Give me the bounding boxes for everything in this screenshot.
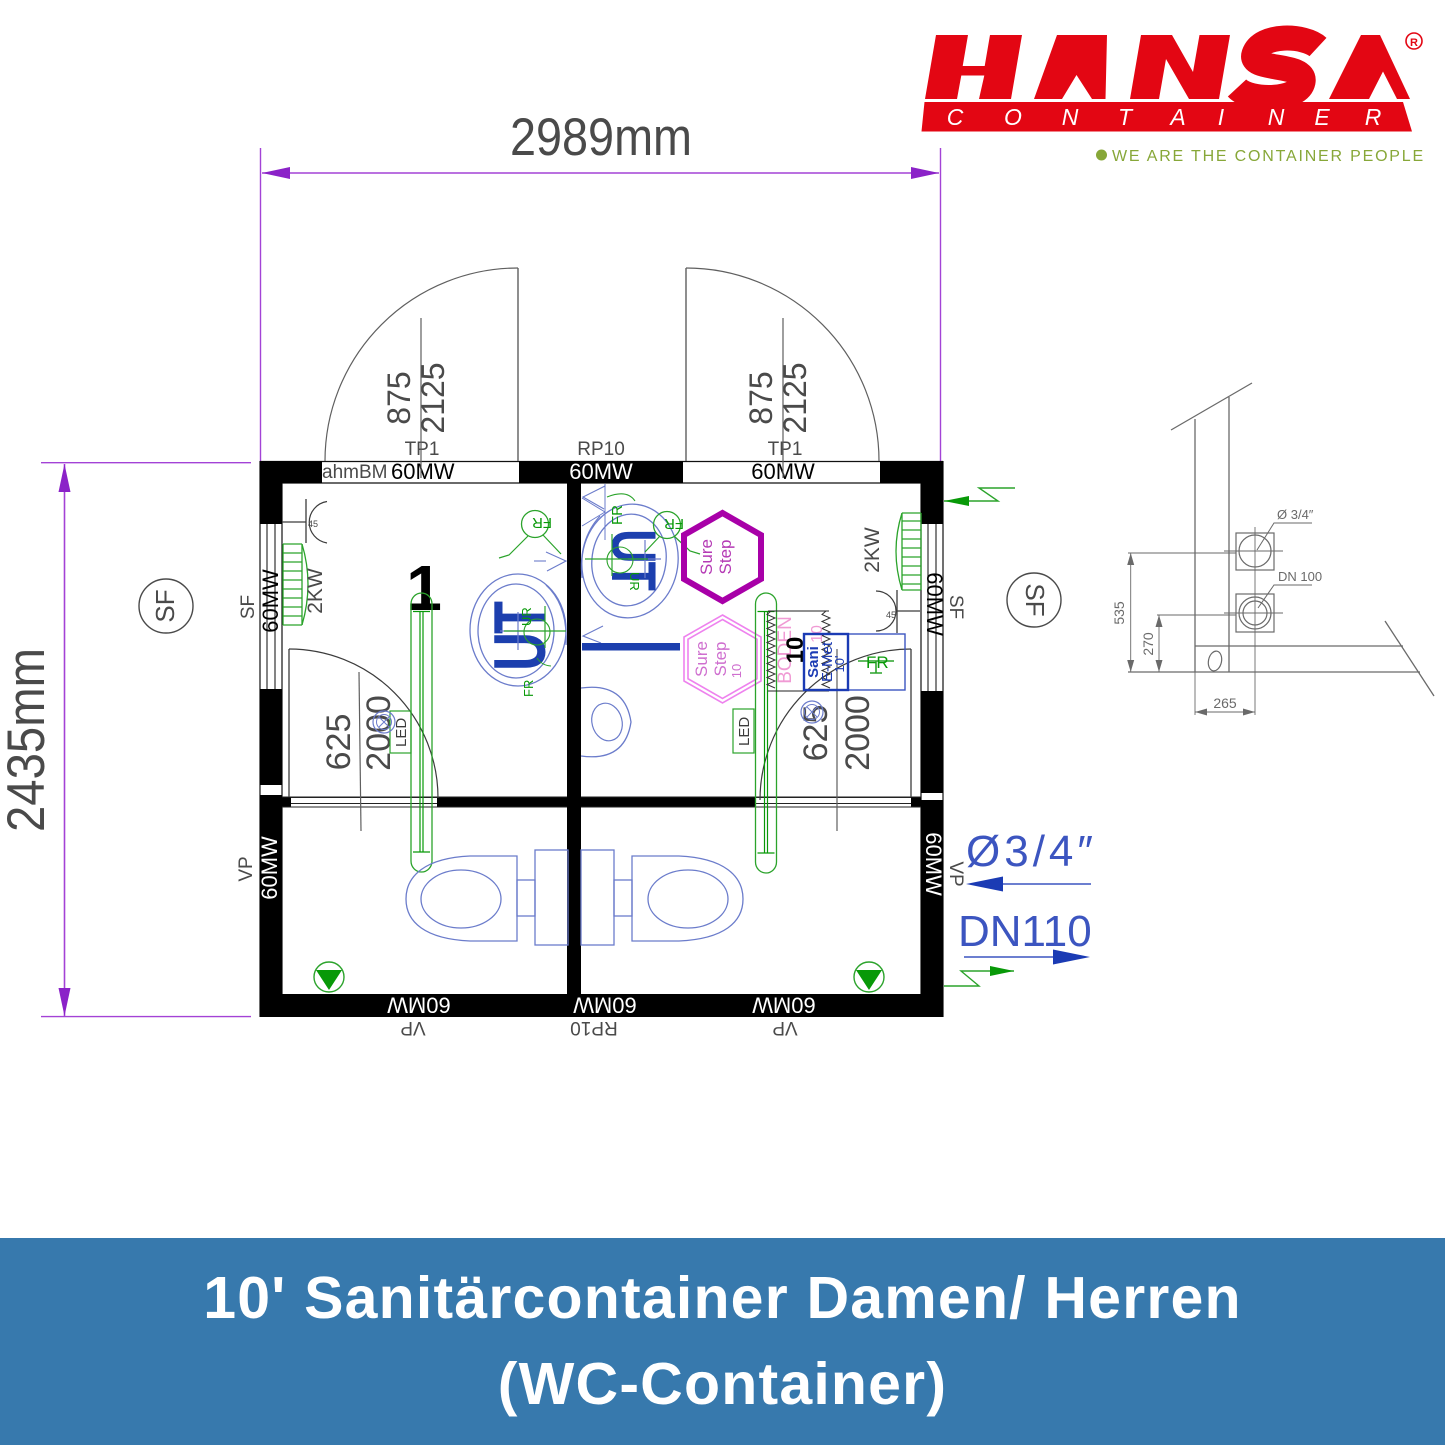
svg-text:875: 875 [743, 371, 779, 424]
svg-text:LED: LED [736, 717, 753, 746]
svg-text:O: O [1004, 104, 1022, 130]
svg-text:10': 10' [832, 656, 847, 673]
svg-text:C: C [947, 104, 964, 130]
svg-text:60MW: 60MW [387, 993, 451, 1018]
svg-text:TP1: TP1 [768, 439, 803, 460]
svg-text:A: A [1168, 104, 1185, 130]
svg-text:SF: SF [945, 595, 966, 619]
svg-text:FR: FR [664, 515, 684, 532]
svg-text:875: 875 [381, 371, 417, 424]
svg-text:265: 265 [1213, 695, 1237, 711]
svg-text:SF: SF [238, 595, 259, 619]
svg-text:60MW: 60MW [258, 569, 283, 633]
svg-text:FR: FR [609, 505, 626, 525]
svg-text:FR: FR [521, 680, 536, 697]
svg-text:RP10: RP10 [570, 1017, 618, 1038]
svg-text:RP10: RP10 [577, 439, 625, 460]
svg-text:DN 100: DN 100 [1278, 569, 1322, 584]
svg-text:Ø 3/4″: Ø 3/4″ [1277, 507, 1314, 522]
svg-text:N: N [1062, 104, 1079, 130]
svg-text:270: 270 [1140, 632, 1156, 656]
svg-text:R: R [1365, 104, 1382, 130]
svg-text:DN110: DN110 [958, 907, 1092, 956]
svg-text:45: 45 [308, 519, 318, 529]
svg-text:VP: VP [945, 861, 966, 886]
svg-text:2KW: 2KW [861, 527, 884, 573]
svg-text:FR: FR [866, 653, 889, 672]
svg-text:535: 535 [1111, 601, 1127, 625]
svg-text:625: 625 [797, 705, 835, 762]
svg-text:Ø3/4″: Ø3/4″ [966, 827, 1097, 876]
svg-text:60MW: 60MW [257, 836, 282, 900]
svg-text:FR: FR [532, 514, 552, 531]
svg-text:N: N [1268, 104, 1285, 130]
svg-text:Step: Step [716, 540, 735, 575]
svg-text:UR: UR [627, 572, 642, 591]
svg-text:2000: 2000 [839, 695, 877, 771]
svg-text:WE ARE THE CONTAINER PEOPLE: WE ARE THE CONTAINER PEOPLE [1112, 148, 1425, 165]
svg-text:60MW: 60MW [921, 832, 946, 896]
svg-text:E: E [1314, 104, 1330, 130]
svg-text:2435mm: 2435mm [0, 648, 56, 832]
svg-text:ahmBM: ahmBM [322, 462, 387, 483]
svg-text:2KW: 2KW [304, 568, 327, 614]
svg-text:SF: SF [1020, 583, 1050, 616]
svg-text:2125: 2125 [415, 362, 451, 433]
svg-text:60MW: 60MW [573, 993, 637, 1018]
svg-text:60MW: 60MW [569, 459, 633, 484]
svg-text:625: 625 [320, 714, 358, 771]
svg-text:2125: 2125 [777, 362, 813, 433]
svg-text:TP1: TP1 [405, 439, 440, 460]
svg-text:R: R [1410, 37, 1418, 49]
svg-text:T: T [1118, 104, 1134, 130]
svg-text:VP: VP [772, 1017, 797, 1038]
svg-text:I: I [1218, 104, 1225, 130]
svg-text:Sure: Sure [697, 539, 716, 575]
svg-text:60MW: 60MW [391, 459, 455, 484]
svg-text:2989mm: 2989mm [510, 108, 692, 167]
svg-text:45: 45 [886, 610, 896, 620]
svg-text:60MW: 60MW [752, 993, 816, 1018]
svg-text:Step: Step [711, 642, 730, 677]
svg-text:UR: UR [519, 607, 534, 626]
svg-text:Sure: Sure [692, 641, 711, 677]
svg-text:SF: SF [150, 589, 180, 622]
svg-text:VP: VP [400, 1017, 425, 1038]
svg-text:VP: VP [236, 856, 257, 881]
svg-text:10: 10 [729, 664, 744, 678]
svg-text:60MW: 60MW [922, 572, 947, 636]
